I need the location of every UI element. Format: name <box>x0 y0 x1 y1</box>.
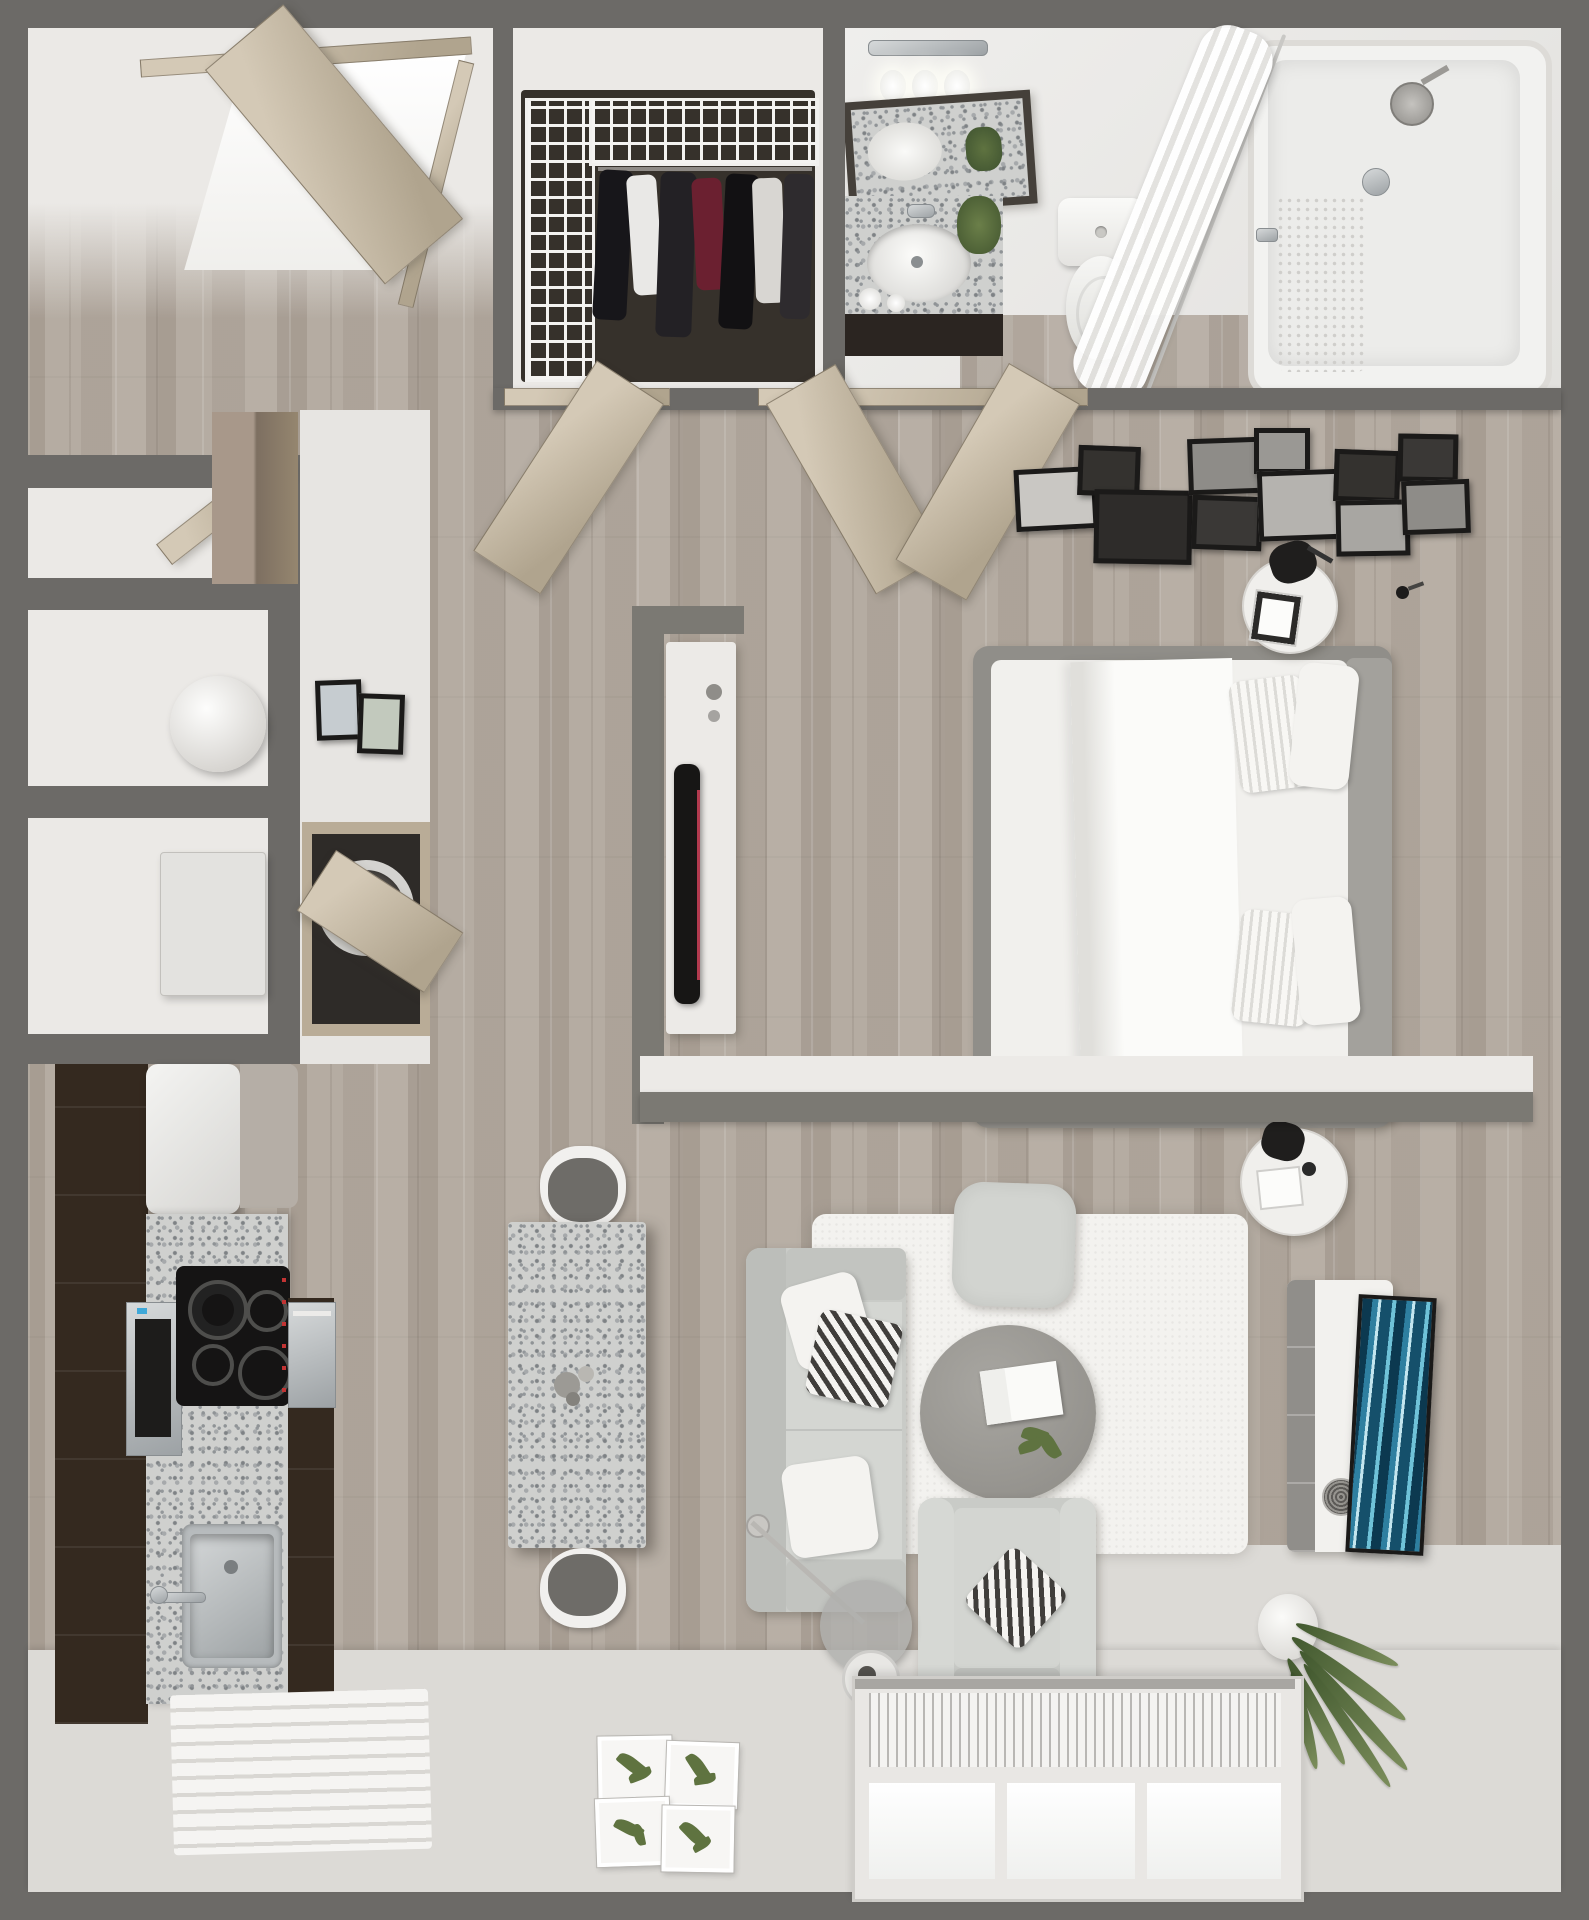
wall-art-small <box>357 693 405 755</box>
ottoman <box>951 1181 1077 1309</box>
desk-decor <box>706 684 722 700</box>
window-mullion <box>869 1767 1281 1783</box>
vanity-light-bar <box>868 40 988 56</box>
bed-pillow-white <box>1291 896 1362 1027</box>
sink-drain <box>224 1560 238 1574</box>
desk-decor <box>708 710 720 722</box>
botanical-print <box>597 1735 672 1804</box>
burner <box>192 1344 234 1386</box>
wall-sconce <box>1396 586 1409 599</box>
mirror-sink-reflection <box>866 120 944 183</box>
window-pane <box>1147 1783 1281 1879</box>
gallery-frame <box>1254 428 1310 474</box>
niche-wall <box>0 786 300 818</box>
rolled-towel <box>859 288 881 310</box>
bedside-book <box>1256 1166 1304 1210</box>
sofa-pillow-white <box>780 1454 880 1559</box>
closet-rod <box>598 167 812 171</box>
print-leaf <box>632 1823 646 1847</box>
window-top-rail <box>855 1679 1295 1689</box>
microwave-window <box>135 1319 171 1437</box>
gallery-frame <box>1401 479 1471 535</box>
wall-art-small <box>315 679 363 741</box>
rolled-towel <box>887 294 905 312</box>
tall-cabinet <box>212 412 298 584</box>
wall-entry-closet <box>493 28 513 388</box>
half-wall-vertical <box>632 612 664 1124</box>
dishwasher-handle <box>293 1311 331 1316</box>
botanical-print <box>595 1797 671 1868</box>
botanical-print <box>665 1741 739 1809</box>
vanity-faucet <box>907 204 935 218</box>
closet-wire-shelf-left <box>525 98 595 382</box>
niche-wall <box>0 1034 300 1064</box>
gallery-frame <box>1398 433 1459 482</box>
duvet-fold <box>1070 658 1244 1114</box>
mirror-plant-reflection <box>964 126 1003 172</box>
cooktop <box>176 1266 290 1406</box>
hanging-clothes <box>779 174 814 320</box>
gallery-frame <box>1187 437 1263 496</box>
fridge <box>146 1064 240 1214</box>
bedside-bottle <box>1302 1162 1316 1176</box>
chair-seat <box>548 1554 618 1616</box>
sink-drain <box>911 256 923 268</box>
shower-valve <box>1362 168 1390 196</box>
vanity-cabinet-front <box>845 314 1003 356</box>
dining-chair <box>540 1548 626 1628</box>
desk-tv-screen-edge <box>697 790 700 980</box>
sofa-backrest <box>746 1248 786 1612</box>
burner <box>188 1280 248 1340</box>
dining-chair <box>540 1146 626 1230</box>
microwave-display <box>137 1308 147 1314</box>
toilet-flush-button <box>1095 226 1107 238</box>
chair-seat <box>548 1158 618 1222</box>
wall-tv <box>1345 1294 1436 1556</box>
gallery-frame <box>1191 495 1263 551</box>
shower-head <box>1390 82 1434 126</box>
gallery-frame <box>1336 499 1411 556</box>
window-frame <box>852 1676 1304 1902</box>
tub-spout <box>1256 228 1278 242</box>
floorplan-canvas: Studio Apartment – 3D Top-Down Floor Pla… <box>0 0 1589 1920</box>
hanging-clothes <box>655 171 697 337</box>
botanical-print <box>661 1805 734 1872</box>
sofa-pillow-chevron <box>804 1308 904 1410</box>
closet-wire-shelf-top <box>589 98 819 166</box>
table-centerpiece-small <box>578 1366 594 1382</box>
wall-closet-bath <box>823 28 845 388</box>
storage-box <box>160 852 266 996</box>
microwave <box>126 1302 182 1456</box>
half-wall-horizontal <box>640 1092 1533 1122</box>
decor-sphere <box>170 676 266 772</box>
tub-mat <box>1276 196 1368 372</box>
vanity-plant <box>957 196 1001 254</box>
media-console-drawers <box>1287 1280 1315 1552</box>
half-wall-ledge <box>640 1056 1533 1092</box>
bedside-book <box>1249 589 1304 647</box>
coffee-book <box>980 1361 1064 1425</box>
fridge-side-panel <box>240 1064 298 1208</box>
vanity-bulb <box>880 70 906 102</box>
gallery-frame <box>1093 489 1192 565</box>
table-centerpiece-small <box>566 1392 580 1406</box>
striped-mat <box>170 1689 432 1856</box>
gallery-frame <box>1333 449 1401 503</box>
window-blinds <box>869 1693 1281 1767</box>
kitchen-faucet-base <box>150 1586 168 1604</box>
vanity-counter <box>845 196 1003 314</box>
window-pane <box>1007 1783 1135 1879</box>
dishwasher <box>288 1302 336 1408</box>
cooktop-indicators <box>282 1278 286 1396</box>
window-pane <box>869 1783 995 1879</box>
